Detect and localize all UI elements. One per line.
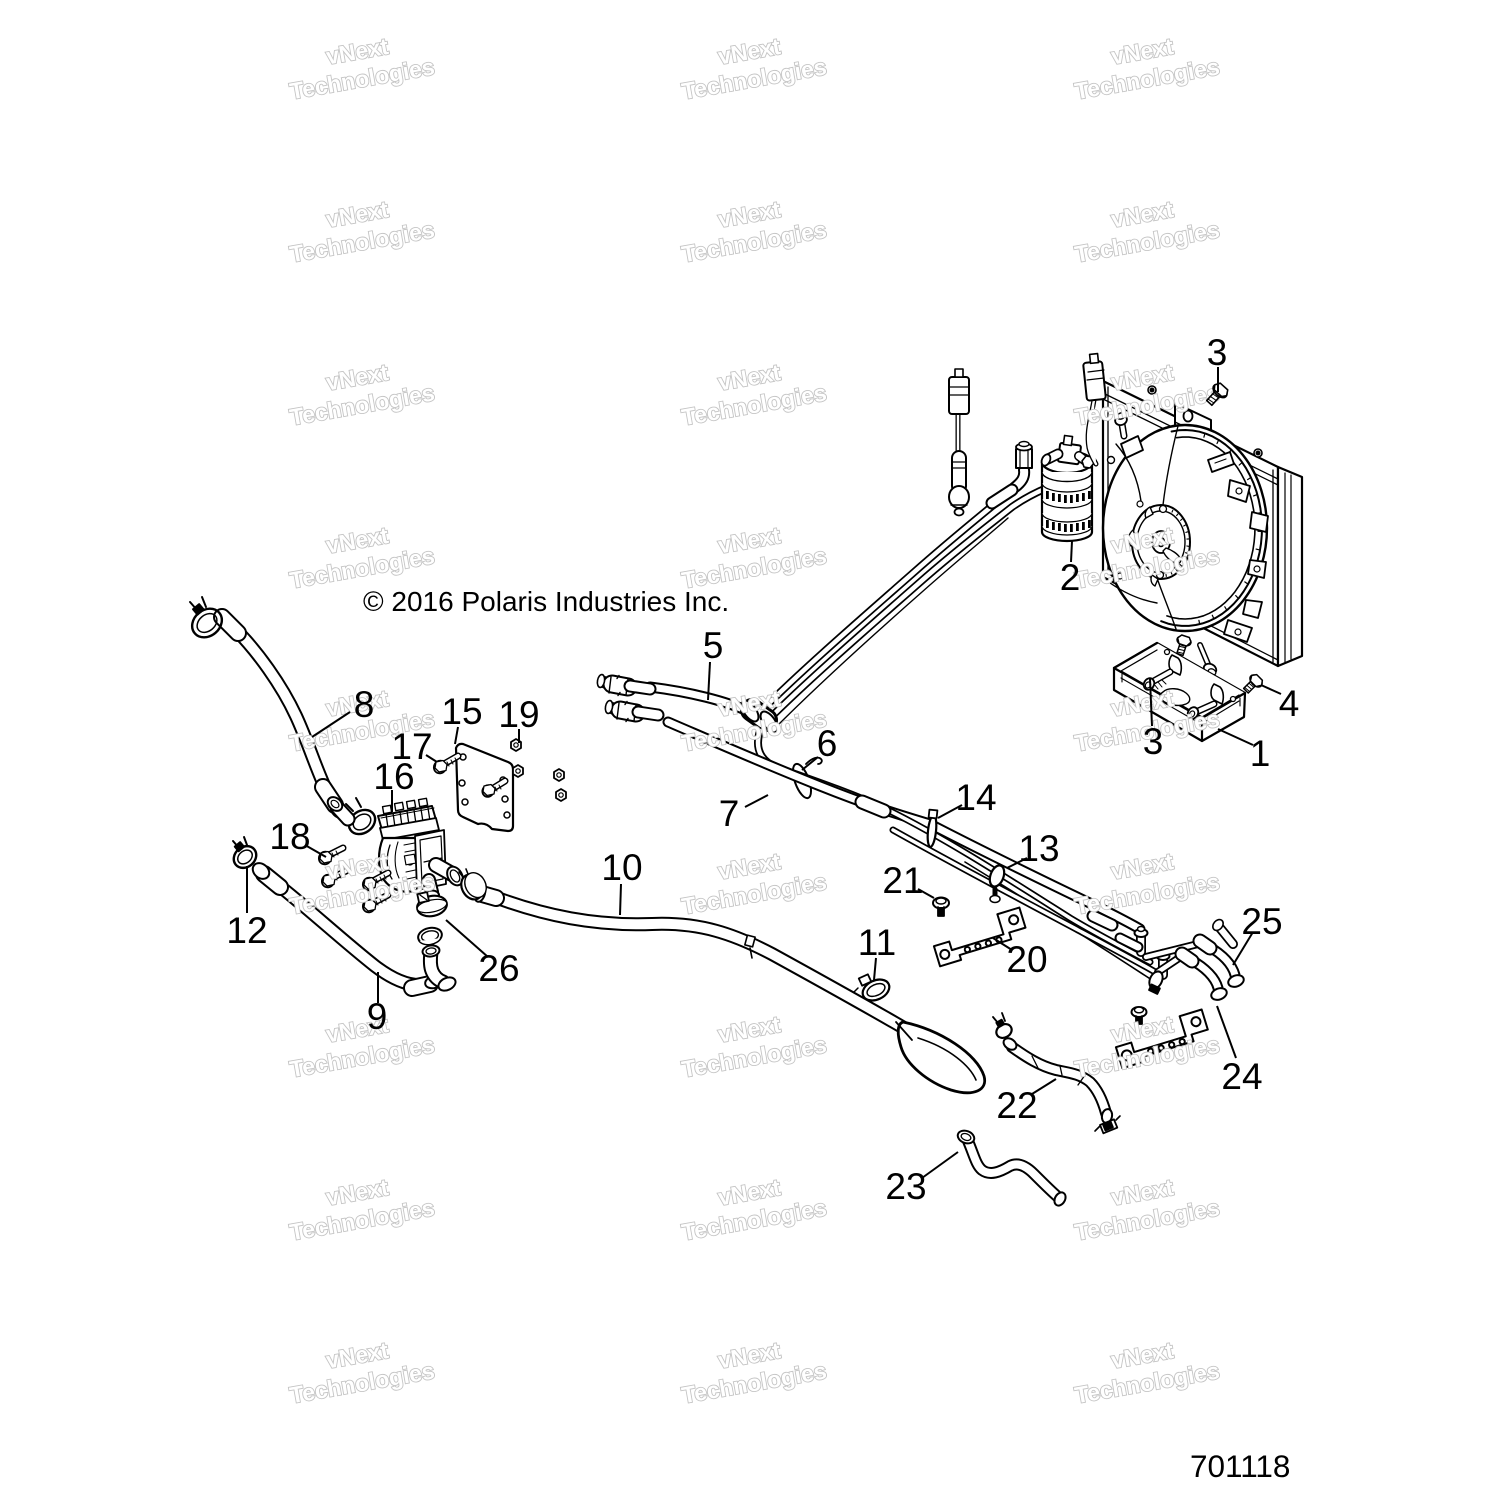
svg-text:18: 18 [269, 816, 310, 857]
svg-text:7: 7 [719, 793, 740, 834]
svg-text:3: 3 [1207, 332, 1228, 373]
svg-text:15: 15 [441, 691, 482, 732]
svg-text:3: 3 [1143, 721, 1164, 762]
svg-text:701118: 701118 [1190, 1448, 1290, 1484]
svg-text:26: 26 [478, 948, 519, 989]
svg-text:25: 25 [1241, 901, 1282, 942]
svg-text:22: 22 [996, 1085, 1037, 1126]
svg-text:10: 10 [601, 847, 642, 888]
svg-text:14: 14 [955, 777, 996, 818]
svg-text:19: 19 [498, 694, 539, 735]
svg-text:8: 8 [354, 684, 375, 725]
svg-text:24: 24 [1221, 1056, 1262, 1097]
svg-text:5: 5 [703, 625, 724, 666]
svg-text:1: 1 [1250, 733, 1271, 774]
svg-text:6: 6 [817, 723, 838, 764]
svg-text:11: 11 [858, 922, 896, 963]
svg-text:© 2016 Polaris Industries Inc.: © 2016 Polaris Industries Inc. [363, 586, 729, 617]
svg-text:17: 17 [391, 726, 432, 767]
svg-text:23: 23 [885, 1166, 926, 1207]
svg-text:4: 4 [1279, 683, 1300, 724]
svg-text:20: 20 [1006, 939, 1047, 980]
svg-text:13: 13 [1018, 828, 1059, 869]
svg-text:9: 9 [367, 996, 388, 1037]
svg-text:12: 12 [226, 910, 267, 951]
svg-text:2: 2 [1060, 557, 1081, 598]
svg-text:21: 21 [882, 860, 923, 901]
